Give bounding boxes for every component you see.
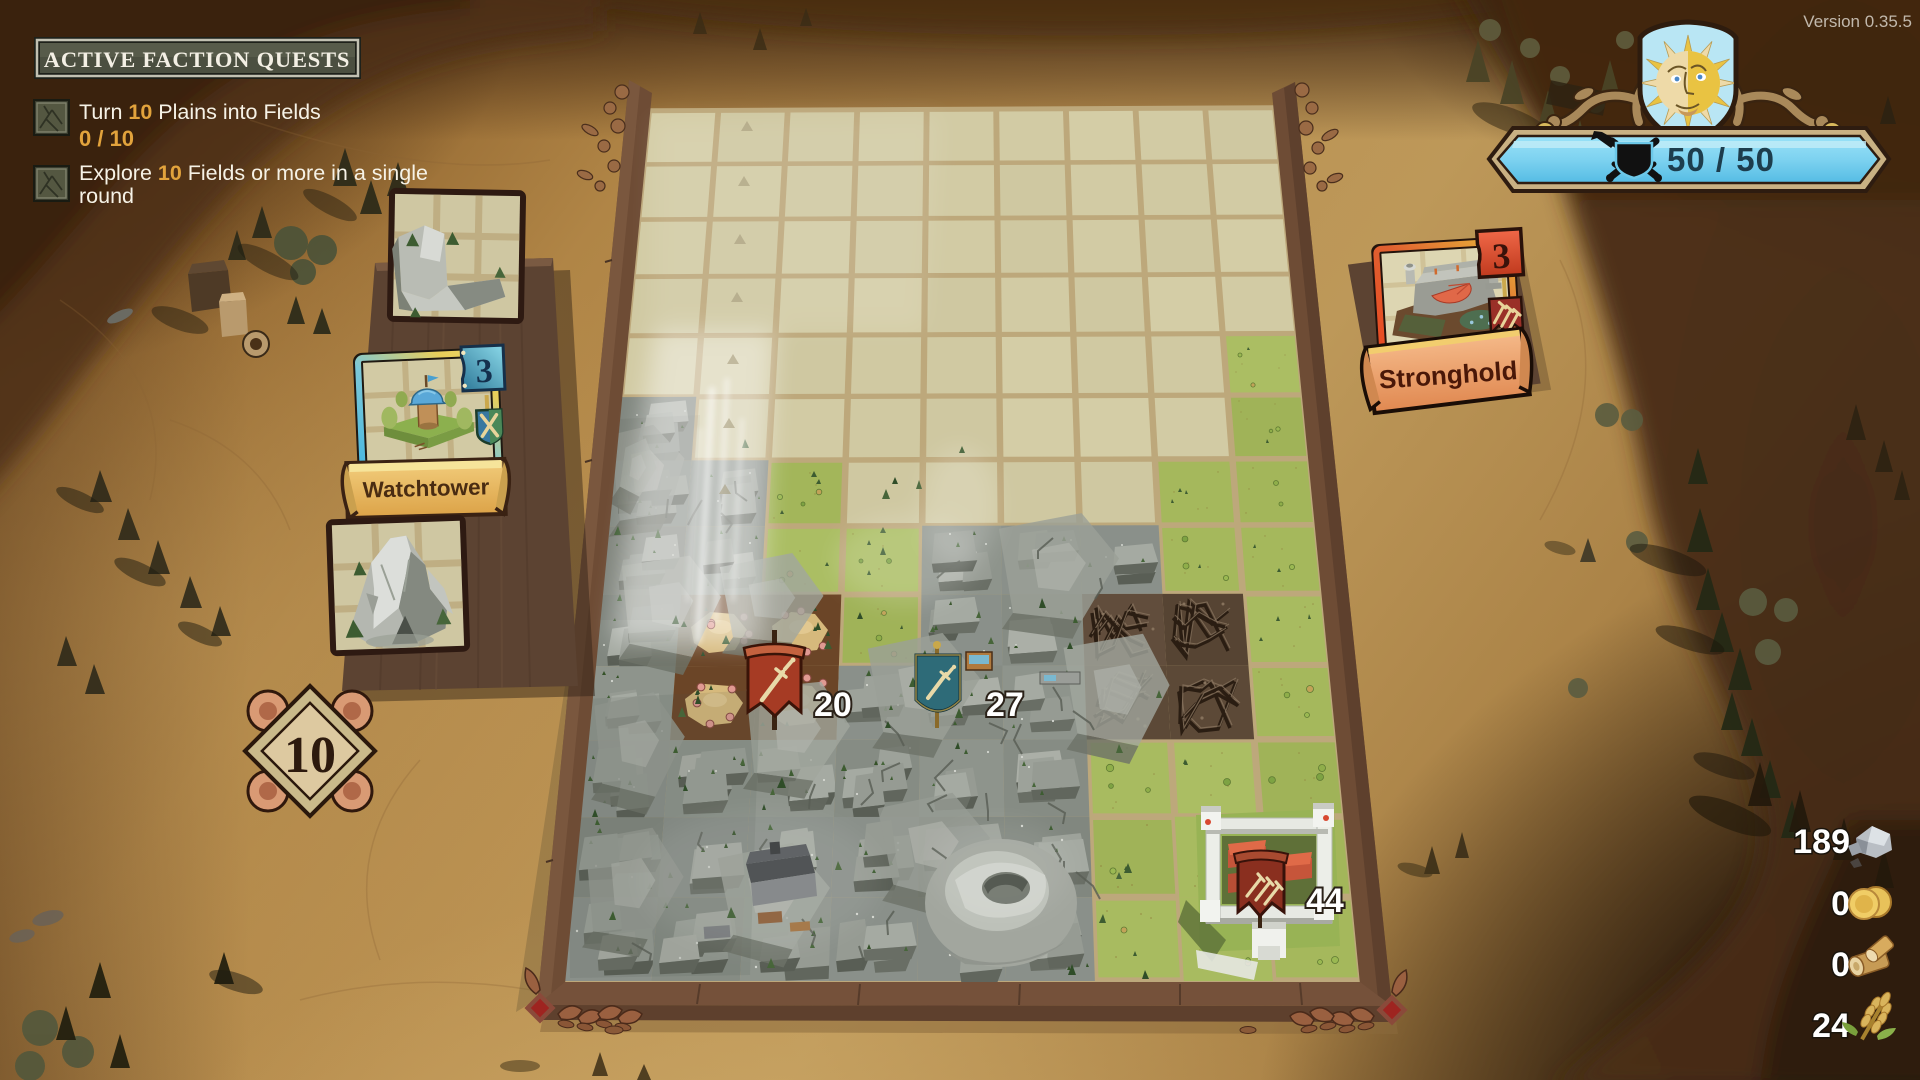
svg-text:0: 0 [1831, 946, 1850, 984]
svg-text:0: 0 [1831, 885, 1850, 923]
svg-text:0 / 10: 0 / 10 [79, 126, 134, 151]
svg-text:189: 189 [1793, 823, 1850, 861]
svg-text:Explore 10 Fields or more in a: Explore 10 Fields or more in a single [79, 161, 428, 185]
svg-text:Turn 10 Plains into Fields: Turn 10 Plains into Fields [79, 100, 321, 124]
svg-text:round: round [79, 184, 134, 208]
svg-text:44: 44 [1306, 882, 1344, 920]
svg-text:10: 10 [284, 727, 336, 784]
svg-text:20: 20 [814, 686, 852, 724]
svg-text:27: 27 [986, 686, 1024, 724]
svg-text:50 / 50: 50 / 50 [1667, 141, 1775, 178]
svg-text:Version 0.35.5: Version 0.35.5 [1803, 12, 1912, 31]
svg-text:3: 3 [1491, 235, 1511, 276]
svg-text:Watchtower: Watchtower [362, 474, 490, 502]
svg-text:3: 3 [475, 353, 494, 391]
svg-text:ACTIVE FACTION QUESTS: ACTIVE FACTION QUESTS [44, 47, 350, 72]
